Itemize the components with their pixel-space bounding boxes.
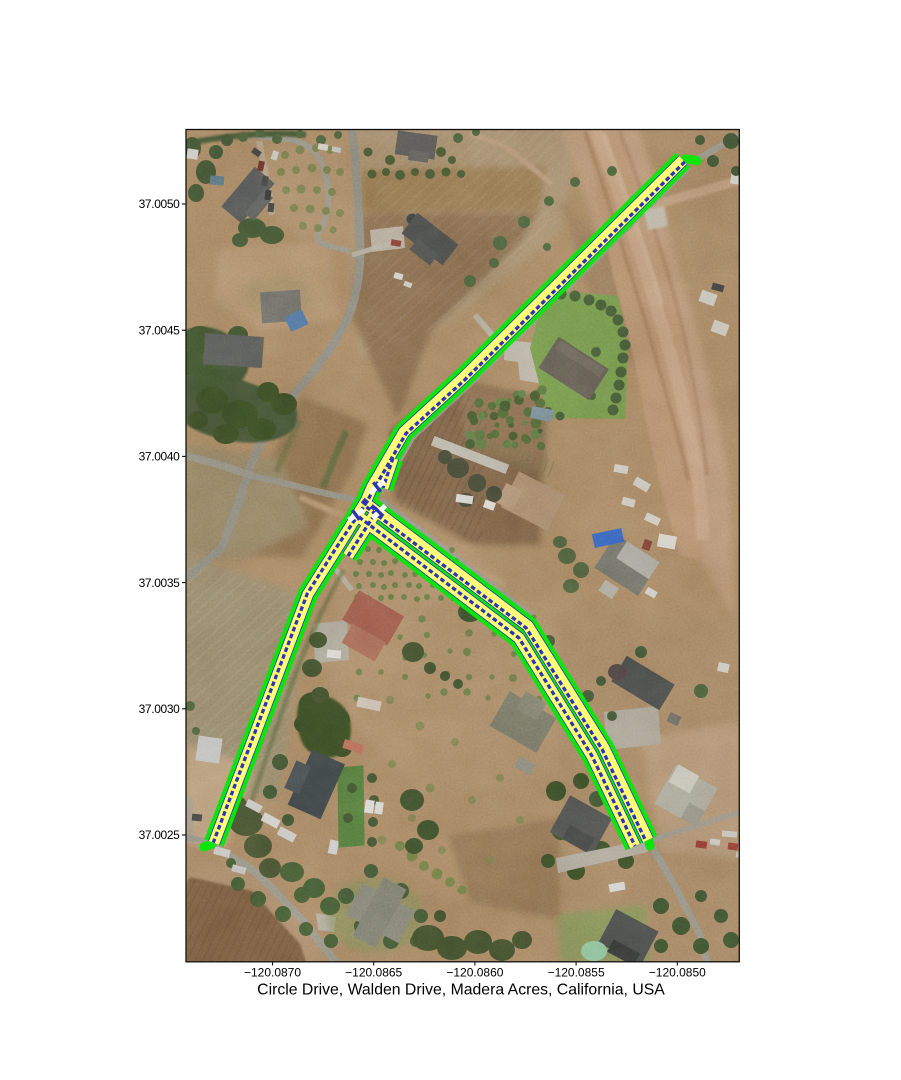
- svg-text:−120.0850: −120.0850: [649, 966, 706, 980]
- svg-text:Circle Drive, Walden Drive, Ma: Circle Drive, Walden Drive, Madera Acres…: [257, 982, 665, 999]
- svg-text:−120.0855: −120.0855: [548, 966, 605, 980]
- svg-text:−120.0870: −120.0870: [244, 966, 301, 980]
- svg-text:37.0035: 37.0035: [139, 576, 181, 590]
- svg-text:37.0030: 37.0030: [139, 702, 181, 716]
- svg-text:−120.0865: −120.0865: [345, 966, 402, 980]
- svg-text:−120.0860: −120.0860: [446, 966, 503, 980]
- svg-text:37.0025: 37.0025: [139, 828, 181, 842]
- svg-text:37.0050: 37.0050: [139, 197, 181, 211]
- svg-text:37.0040: 37.0040: [139, 450, 181, 464]
- svg-text:37.0045: 37.0045: [139, 323, 181, 337]
